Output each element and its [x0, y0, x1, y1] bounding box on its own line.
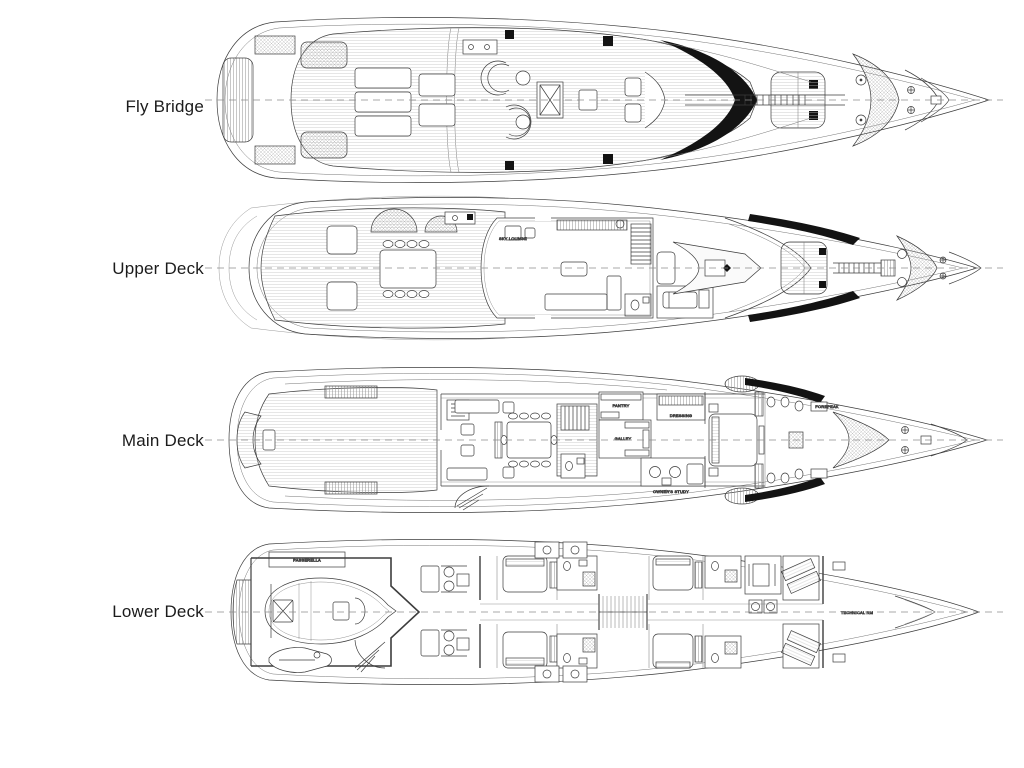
mooring-gear-starboard — [325, 482, 377, 494]
forepeak-label: FOREPEAK — [815, 404, 839, 409]
stern-seat-port — [255, 36, 295, 54]
mooring-gear-port — [325, 386, 377, 398]
vip-cabin-port — [497, 556, 557, 600]
guest-cabin-port — [649, 556, 703, 600]
deck-label-lower-deck: Lower Deck — [0, 602, 204, 622]
vip-cabin-starboard — [497, 624, 557, 668]
lower-deck-plan-drawing: PASSERELLA — [205, 530, 1005, 694]
tender-boat — [265, 578, 396, 644]
deck-label-upper-deck: Upper Deck — [0, 259, 204, 279]
jet-ski — [269, 647, 332, 672]
aft-sunpad-port — [301, 42, 347, 68]
day-head — [561, 454, 585, 478]
pantry-label: PANTRY — [612, 403, 629, 408]
gym-equipment-starboard — [421, 630, 469, 656]
deck-label-main-deck: Main Deck — [0, 431, 204, 451]
upper-deck-plan-drawing: SKY LOUNGE — [205, 190, 1005, 346]
deck-bar-cabinet — [445, 212, 475, 224]
bow-table-starboard — [898, 278, 907, 287]
gym-equipment-port — [421, 566, 469, 592]
swim-platform — [223, 58, 253, 142]
owners-study — [641, 458, 705, 486]
technical-room-label: TECHNICAL RM — [841, 610, 873, 615]
deck-label-fly-bridge: Fly Bridge — [0, 97, 204, 117]
owners-study-label: OWNER'S STUDY — [653, 489, 689, 494]
stern-seat-starboard — [255, 146, 295, 164]
guest-cabin-starboard — [649, 624, 703, 668]
bow-table-port — [898, 250, 907, 259]
deck-plans-canvas: Fly Bridge Upper Deck Main Deck Lower De… — [0, 0, 1024, 768]
dressing-label: DRESSING — [670, 413, 693, 418]
wet-bar — [463, 40, 497, 54]
foyer-stairs — [561, 406, 589, 430]
garage-spiral-stair — [355, 640, 385, 672]
laundry — [749, 600, 777, 613]
fly-bridge-plan-drawing — [205, 12, 1005, 188]
crew-cabin-port — [782, 556, 821, 600]
crew-mess — [745, 556, 781, 594]
main-deck-plan-drawing: PANTRY GALLEY OWNER'S STUDY DRESSING — [205, 360, 1005, 520]
crew-cabin-starboard — [782, 624, 821, 668]
sky-lounge-label: SKY LOUNGE — [499, 236, 527, 241]
aft-sunpad-starboard — [301, 132, 347, 158]
